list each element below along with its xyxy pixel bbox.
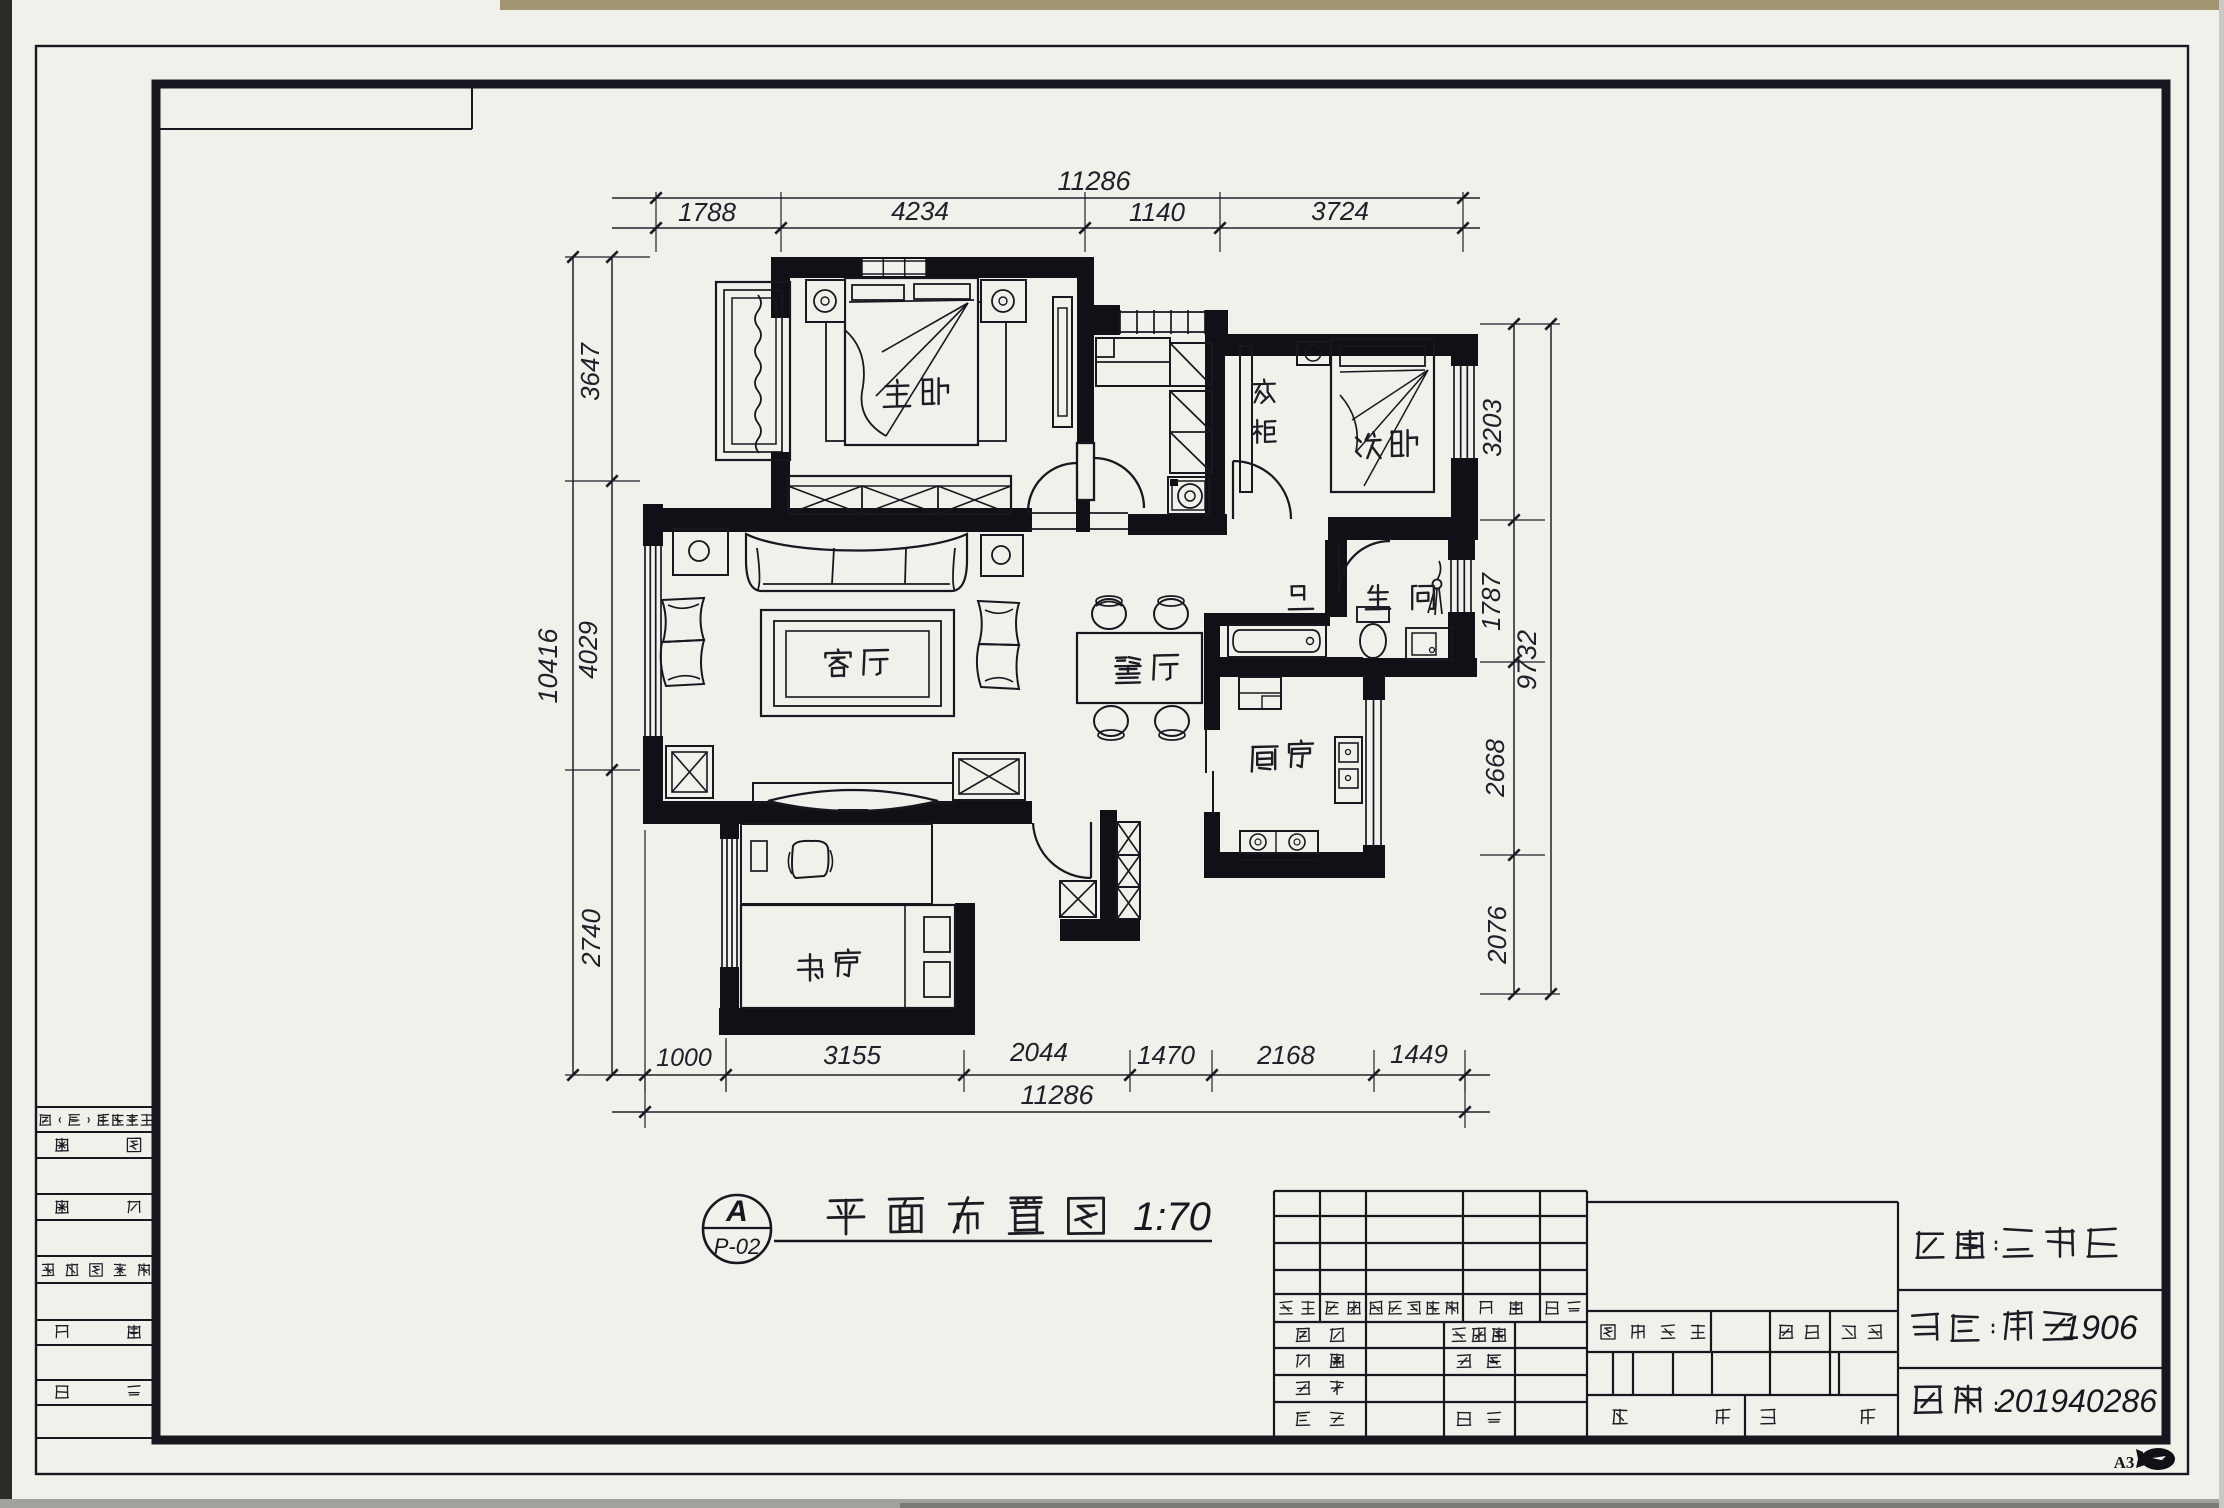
svg-text:3203: 3203 [1477,399,1507,457]
svg-text:11286: 11286 [1020,1080,1094,1110]
svg-text:1788: 1788 [678,197,736,227]
svg-text:3647: 3647 [575,342,605,401]
svg-text:1470: 1470 [1137,1040,1195,1070]
svg-text:9732: 9732 [1512,630,1542,690]
svg-text:1140: 1140 [1129,197,1185,227]
svg-text:A3: A3 [2114,1453,2135,1472]
svg-text:2668: 2668 [1480,739,1510,798]
svg-text:10416: 10416 [533,627,563,703]
svg-text:2076: 2076 [1482,906,1512,965]
svg-text:2044: 2044 [1009,1037,1068,1067]
svg-text:1906: 1906 [2062,1309,2138,1347]
svg-text:P-02: P-02 [714,1234,760,1259]
svg-text:1449: 1449 [1390,1039,1448,1069]
svg-text:201940286: 201940286 [1996,1383,2157,1419]
svg-text:3155: 3155 [823,1040,881,1070]
svg-text:2168: 2168 [1256,1040,1315,1070]
svg-text:1787: 1787 [1476,572,1506,631]
svg-text:A: A [725,1195,748,1228]
svg-text:4029: 4029 [573,621,603,679]
svg-text:1000: 1000 [656,1044,712,1072]
svg-text:11286: 11286 [1057,166,1131,196]
svg-text:4234: 4234 [891,196,949,226]
svg-text:3724: 3724 [1311,196,1369,226]
svg-text:1:70: 1:70 [1133,1195,1211,1239]
svg-text:2740: 2740 [576,909,606,968]
